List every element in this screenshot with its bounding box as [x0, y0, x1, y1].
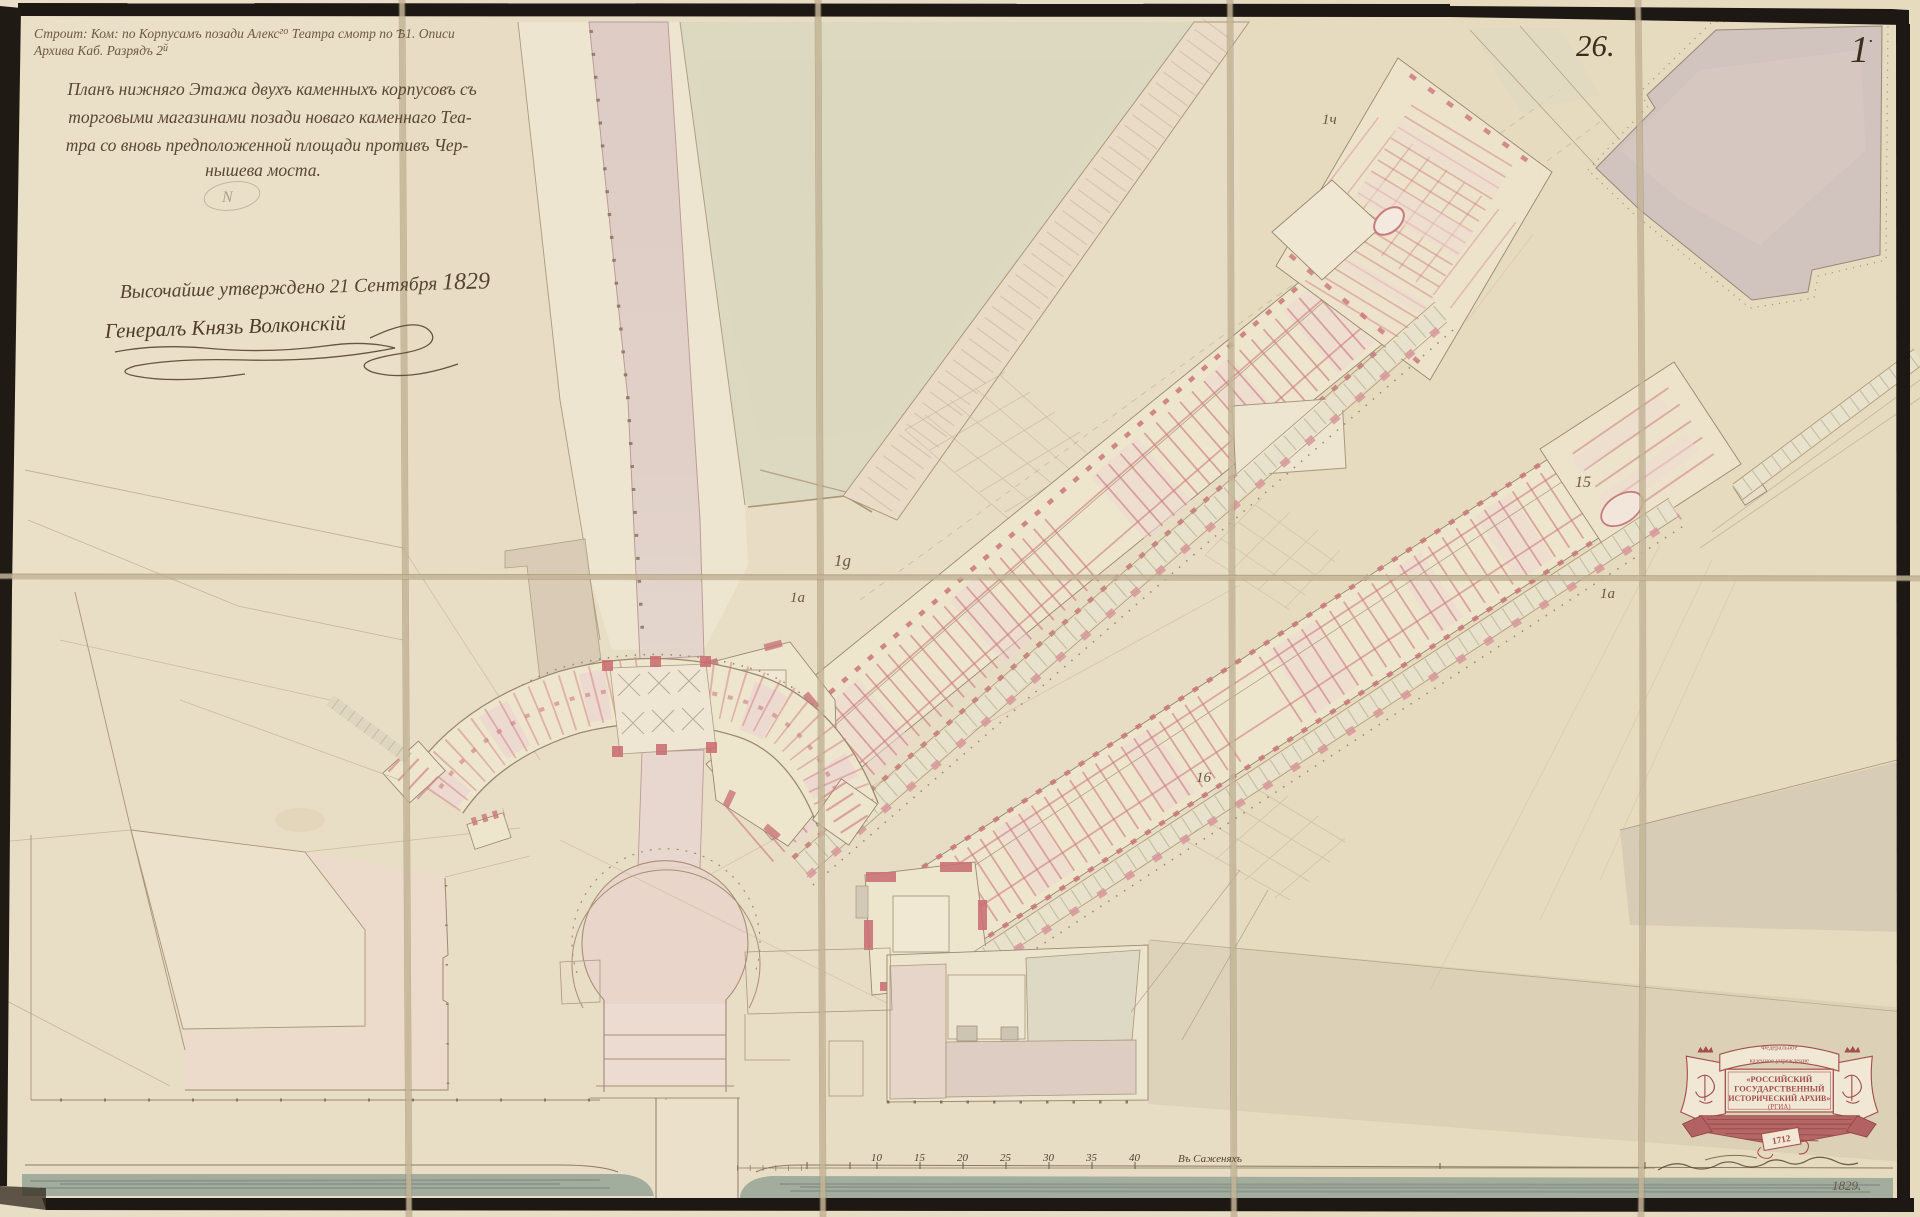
svg-text:Федеральное: Федеральное	[1761, 1045, 1797, 1052]
svg-text:казенное учреждение: казенное учреждение	[1750, 1058, 1809, 1065]
svg-text:10: 10	[871, 1152, 883, 1164]
svg-text:(РГИА): (РГИА)	[1768, 1103, 1791, 1111]
svg-text:Архива Каб. Разрядъ 2й: Архива Каб. Разрядъ 2й	[33, 43, 168, 58]
svg-text:ИСТОРИЧЕСКИЙ АРХИВ»: ИСТОРИЧЕСКИЙ АРХИВ»	[1728, 1094, 1830, 1103]
svg-text:15: 15	[914, 1152, 926, 1164]
svg-text:1g: 1g	[834, 551, 851, 570]
svg-text:N: N	[221, 189, 234, 206]
svg-text:25: 25	[1000, 1152, 1012, 1164]
svg-text:15: 15	[1575, 474, 1591, 491]
svg-text:Въ Саженяхъ: Въ Саженяхъ	[1178, 1153, 1242, 1165]
svg-text:1а: 1а	[1600, 586, 1615, 602]
svg-text:нышева моста.: нышева моста.	[205, 160, 321, 180]
svg-text:40: 40	[1129, 1152, 1141, 1164]
svg-text:1ч: 1ч	[1322, 112, 1337, 128]
svg-text:16: 16	[1196, 770, 1212, 786]
svg-text:тра со вновь предположенной пл: тра со вновь предположенной площади прот…	[66, 135, 469, 155]
svg-text:Строит: Ком: по Корпусамъ поза: Строит: Ком: по Корпусамъ позади Алексго…	[34, 26, 455, 41]
svg-text:20: 20	[957, 1152, 969, 1164]
svg-text:30: 30	[1042, 1152, 1055, 1164]
svg-text:26.: 26.	[1576, 28, 1615, 63]
svg-text:торговыми магазинами позади но: торговыми магазинами позади новаго камен…	[68, 107, 472, 127]
svg-text:Планъ нижняго Этажа двухъ каме: Планъ нижняго Этажа двухъ каменныхъ корп…	[66, 79, 476, 99]
svg-text:1829.: 1829.	[1832, 1178, 1861, 1193]
svg-text:ГОСУДАРСТВЕННЫЙ: ГОСУДАРСТВЕННЫЙ	[1734, 1085, 1825, 1094]
svg-text:1а: 1а	[790, 590, 805, 606]
svg-text:«РОССИЙСКИЙ: «РОССИЙСКИЙ	[1746, 1075, 1813, 1084]
svg-text:35: 35	[1085, 1152, 1098, 1164]
